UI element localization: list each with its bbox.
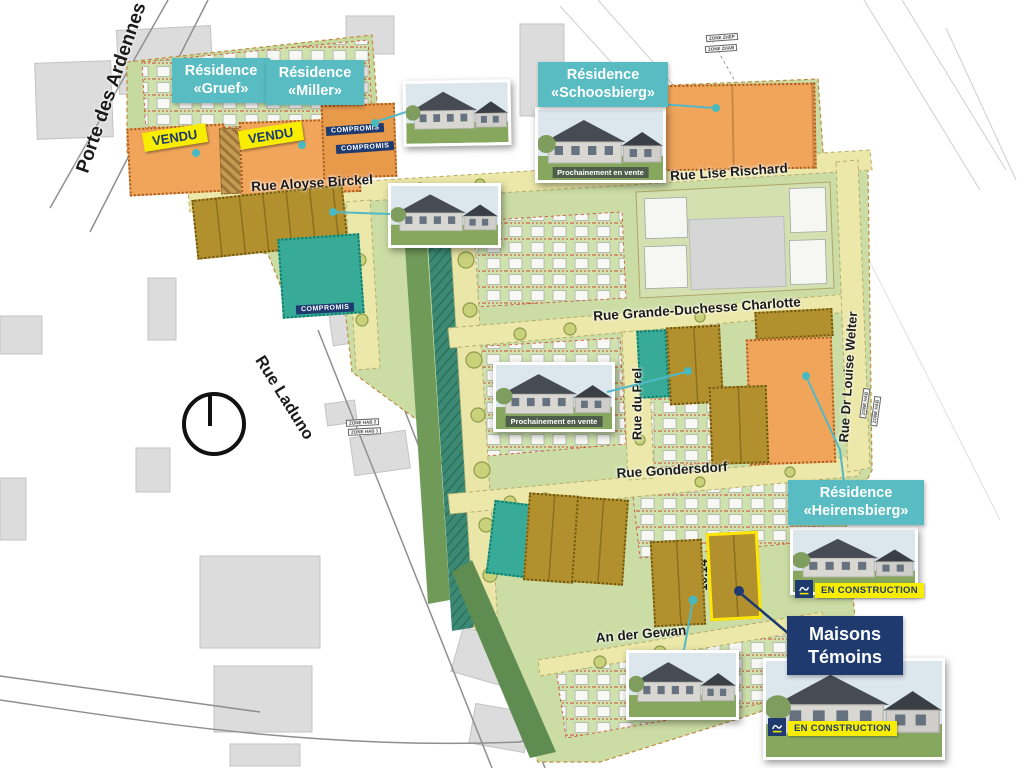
- residence-box-schoosbierg[interactable]: Résidence «Schoosbierg»: [538, 62, 668, 107]
- builder-logo-icon: [768, 718, 786, 736]
- residence-box-heirensbierg[interactable]: Résidence «Heirensbierg»: [788, 480, 924, 525]
- maisons-temoins-line1: Maisons: [799, 623, 891, 646]
- photo-render-top[interactable]: [402, 79, 511, 147]
- plot-block-10-15-14[interactable]: [650, 539, 706, 628]
- residence-schoosbierg-line1: Résidence: [545, 67, 661, 85]
- site-plan: Prochainement en vente Prochainement en …: [0, 0, 1024, 768]
- residence-gruef-line2: «Gruef»: [179, 81, 263, 99]
- house-render-image: [629, 653, 736, 717]
- photo-schoosbierg[interactable]: Prochainement en vente: [535, 107, 666, 183]
- residence-box-miller[interactable]: Résidence «Miller»: [266, 60, 364, 105]
- north-needle-icon: [208, 394, 212, 426]
- plot-block-10-2-3[interactable]: [523, 492, 579, 583]
- residence-schoosbierg-line2: «Schoosbierg»: [545, 85, 661, 103]
- en-construction-label: EN CONSTRUCTION: [815, 583, 924, 598]
- residence-miller-line2: «Miller»: [273, 83, 357, 101]
- en-construction-tag-bottom: EN CONSTRUCTION: [768, 718, 897, 736]
- residence-heirensbierg-line2: «Heirensbierg»: [795, 503, 917, 521]
- photo-bottom-center[interactable]: [626, 650, 739, 720]
- photo-center[interactable]: Prochainement en vente: [493, 362, 615, 432]
- en-construction-label: EN CONSTRUCTION: [788, 721, 897, 736]
- plot-block-9b6[interactable]: [754, 308, 833, 340]
- residence-box-gruef[interactable]: Résidence «Gruef»: [172, 58, 270, 103]
- street-label-rue-du-prel: Rue du Prel: [630, 368, 645, 440]
- maisons-temoins-line2: Témoins: [799, 646, 891, 669]
- plot-block-16[interactable]: [651, 83, 816, 172]
- house-render-image: [391, 186, 498, 245]
- residence-miller-line1: Résidence: [273, 65, 357, 83]
- caption-prochainement-schoosbierg: Prochainement en vente: [552, 167, 649, 178]
- existing-buildings-block: [636, 182, 834, 298]
- maisons-temoins-box[interactable]: Maisons Témoins: [787, 616, 903, 675]
- plot-block-10-4-5[interactable]: [571, 496, 629, 585]
- residence-heirensbierg-line1: Résidence: [795, 485, 917, 503]
- plot-block-10-13-12-highlighted[interactable]: [706, 531, 763, 622]
- caption-prochainement-center: Prochainement en vente: [506, 416, 603, 427]
- house-render-image: [405, 82, 508, 144]
- residence-gruef-line1: Résidence: [179, 63, 263, 81]
- builder-logo-icon: [795, 580, 813, 598]
- plot-block-9a8-7[interactable]: [709, 385, 770, 465]
- north-indicator-icon: [182, 392, 246, 456]
- en-construction-tag-heirensbierg: EN CONSTRUCTION: [795, 580, 924, 598]
- photo-render-left[interactable]: [388, 183, 501, 248]
- house-render-image: [766, 661, 942, 757]
